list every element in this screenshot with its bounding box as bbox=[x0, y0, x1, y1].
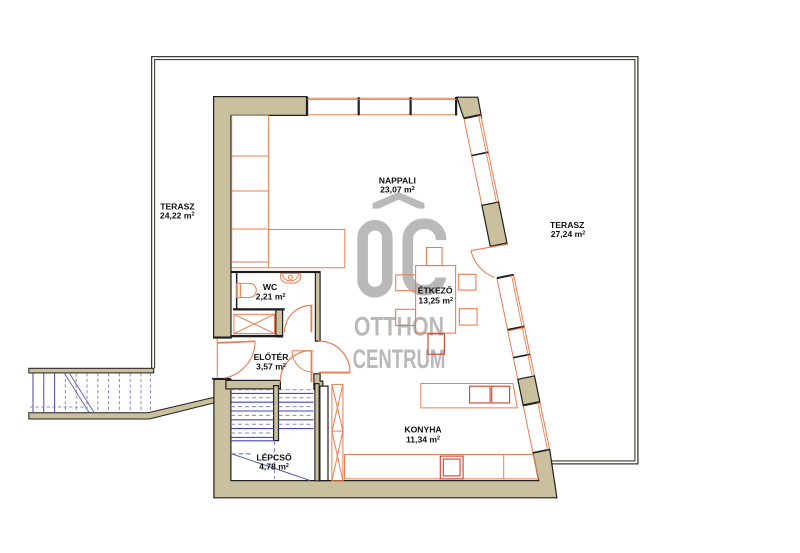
svg-text:2,21 m2: 2,21 m2 bbox=[256, 291, 286, 301]
svg-text:CENTRUM: CENTRUM bbox=[353, 344, 446, 374]
svg-text:OTTHON: OTTHON bbox=[354, 311, 444, 341]
svg-text:13,25 m2: 13,25 m2 bbox=[418, 296, 453, 306]
svg-text:ÉTKEZŐ: ÉTKEZŐ bbox=[418, 285, 453, 296]
svg-text:24,22 m2: 24,22 m2 bbox=[160, 210, 195, 220]
svg-text:KONYHA: KONYHA bbox=[404, 425, 441, 435]
svg-text:ELŐTÉR: ELŐTÉR bbox=[254, 351, 290, 362]
svg-text:23,07 m2: 23,07 m2 bbox=[380, 184, 415, 194]
svg-text:4,78 m2: 4,78 m2 bbox=[259, 461, 289, 471]
svg-text:3,57 m2: 3,57 m2 bbox=[256, 362, 286, 372]
svg-text:11,34 m2: 11,34 m2 bbox=[406, 434, 440, 444]
svg-text:27,24 m2: 27,24 m2 bbox=[551, 229, 586, 239]
